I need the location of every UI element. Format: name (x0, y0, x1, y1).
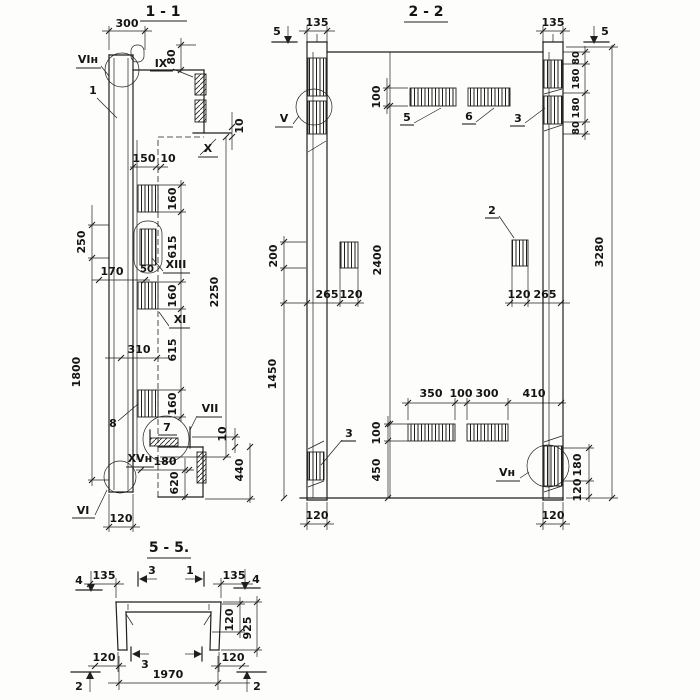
svg-text:160: 160 (166, 187, 179, 210)
callout-2: 2 (488, 204, 496, 217)
svg-text:120: 120 (340, 288, 363, 301)
svg-text:120: 120 (222, 651, 245, 664)
dim-chain-right-top: 80 180 180 80 (563, 46, 590, 140)
svg-text:300: 300 (116, 17, 139, 30)
svg-text:1970: 1970 (153, 668, 184, 681)
section-mark-3-top: 3 (138, 564, 157, 586)
rebar-mesh-bottom-2 (467, 424, 508, 441)
svg-text:450: 450 (370, 458, 383, 481)
section-mark-1-top: 1 (185, 564, 204, 586)
svg-text:10: 10 (216, 426, 229, 442)
svg-text:3280: 3280 (593, 236, 606, 267)
dim-135-right-55: 135 (213, 569, 253, 598)
callout-7: 7 (163, 421, 171, 434)
dim-440: 440 (205, 443, 255, 503)
svg-text:265: 265 (534, 288, 557, 301)
detail-label-v: V (280, 112, 289, 125)
dim-265-120-left: 265 120 (280, 268, 364, 307)
svg-text:615: 615 (166, 236, 179, 259)
right-stile (543, 34, 563, 500)
svg-text:160: 160 (166, 392, 179, 415)
dim-300: 300 (102, 17, 152, 50)
svg-text:5: 5 (601, 25, 609, 38)
dim-310: 310 (105, 343, 168, 361)
svg-text:925: 925 (241, 617, 254, 640)
svg-text:100: 100 (370, 85, 383, 108)
svg-text:310: 310 (128, 343, 151, 356)
callout-6: 6 (465, 110, 473, 123)
dim-120-bottom-left-55: 120 (88, 651, 126, 672)
section-2-2-view: 2 - 2 5 135 (266, 4, 618, 530)
dim-120-bottom-right-55: 120 (211, 651, 249, 672)
detail-label-vin: VIн (78, 53, 98, 66)
left-stile (307, 34, 327, 500)
svg-text:100: 100 (450, 387, 473, 400)
callout-3-bottom: 3 (345, 427, 353, 440)
top-flange-detail (133, 70, 231, 137)
section-mark-2-left: 2 (71, 671, 100, 693)
section-2-2-title: 2 - 2 (408, 4, 443, 20)
dim-120-bottom-right: 120 (536, 502, 570, 530)
svg-text:1800: 1800 (70, 356, 83, 387)
svg-text:120: 120 (223, 608, 236, 631)
dim-170-50: 170 50 (92, 264, 154, 283)
detail-label-vi: VI (77, 504, 90, 517)
detail-label-xvn: XVн (128, 452, 153, 465)
svg-text:4: 4 (252, 573, 260, 586)
section-1-1-title: 1 - 1 (145, 4, 180, 20)
svg-text:440: 440 (233, 458, 246, 481)
section-mark-5-right: 5 (584, 25, 609, 44)
svg-text:135: 135 (306, 16, 329, 29)
svg-text:180: 180 (571, 98, 582, 119)
drawing-sheet: 1 - 1 VIн 1 300 (0, 0, 700, 700)
svg-text:2: 2 (253, 680, 261, 693)
structural-drawing: 1 - 1 VIн 1 300 (0, 0, 700, 700)
svg-text:80: 80 (571, 51, 582, 65)
rebar-mesh-5 (410, 88, 456, 106)
section-5-5-title: 5 - 5. (149, 540, 189, 556)
embed-plate-right (512, 240, 528, 266)
dim-10-flange: 10 (192, 426, 240, 453)
svg-text:120: 120 (571, 478, 584, 501)
section-mark-bottom-right (185, 647, 202, 661)
embed-plate-3 (138, 390, 158, 417)
svg-text:180: 180 (571, 69, 582, 90)
callout-3-top: 3 (514, 112, 522, 125)
dim-chain-bottom: 350 100 300 410 (402, 387, 566, 420)
detail-label-xiii: XIII (166, 258, 187, 271)
detail-label-vii: VII (202, 402, 219, 415)
svg-text:620: 620 (168, 471, 181, 494)
svg-text:50: 50 (140, 264, 154, 275)
detail-label-ix: IX (155, 57, 168, 70)
svg-text:135: 135 (93, 569, 116, 582)
svg-text:1450: 1450 (266, 358, 279, 389)
rebar-mesh-bottom-1 (408, 424, 455, 441)
callout-8: 8 (109, 417, 117, 430)
svg-text:180: 180 (154, 455, 177, 468)
svg-text:180: 180 (571, 453, 584, 476)
svg-text:120: 120 (93, 651, 116, 664)
dim-chain-inner: 160 615 160 615 160 (158, 180, 186, 422)
svg-text:135: 135 (542, 16, 565, 29)
section-mark-2-right: 2 (237, 671, 266, 693)
svg-text:200: 200 (267, 244, 280, 267)
svg-text:135: 135 (223, 569, 246, 582)
embed-plate-2 (138, 282, 158, 309)
svg-text:170: 170 (101, 265, 124, 278)
svg-text:300: 300 (476, 387, 499, 400)
callout-5: 5 (403, 111, 411, 124)
rebar-mesh-6 (468, 88, 510, 106)
svg-text:410: 410 (523, 387, 546, 400)
section-1-1-view: 1 - 1 VIн 1 300 (70, 4, 255, 532)
svg-text:2: 2 (75, 680, 83, 693)
dim-200-1450: 200 1450 (266, 236, 306, 501)
svg-text:3: 3 (141, 658, 149, 671)
svg-text:100: 100 (370, 421, 383, 444)
svg-text:120: 120 (508, 288, 531, 301)
svg-text:120: 120 (110, 512, 133, 525)
svg-text:120: 120 (542, 509, 565, 522)
embed-plate-1 (138, 185, 158, 212)
svg-text:120: 120 (306, 509, 329, 522)
channel-profile (116, 602, 221, 650)
svg-text:160: 160 (166, 284, 179, 307)
svg-text:4: 4 (75, 574, 83, 587)
svg-text:10: 10 (233, 118, 246, 134)
svg-text:2400: 2400 (371, 244, 384, 275)
section-5-5-view: 5 - 5. 4 4 (71, 540, 266, 693)
dim-120-bottom: 120 (103, 494, 140, 532)
svg-text:80: 80 (571, 121, 582, 135)
svg-text:5: 5 (273, 25, 281, 38)
svg-text:350: 350 (420, 387, 443, 400)
dim-chain-left: 250 1800 (70, 205, 109, 486)
svg-text:265: 265 (316, 288, 339, 301)
svg-text:150: 150 (133, 152, 156, 165)
svg-text:1: 1 (186, 564, 194, 577)
dim-100-450-bottom: 100 450 (370, 416, 408, 501)
callout-1: 1 (89, 84, 97, 97)
svg-text:3: 3 (148, 564, 156, 577)
dim-135-left-55: 135 (84, 569, 124, 598)
svg-text:2250: 2250 (208, 276, 221, 307)
dim-100-top: 100 (370, 78, 408, 114)
section-mark-5-left: 5 (272, 25, 297, 44)
dim-10-step: 10 (229, 112, 246, 150)
dim-80: 80 (165, 38, 196, 73)
embed-plate-left (340, 242, 358, 268)
svg-text:250: 250 (75, 230, 88, 253)
dim-120-bottom-left: 120 (300, 502, 334, 530)
section-mark-3-bottom: 3 (131, 647, 149, 671)
detail-label-xi: XI (174, 313, 187, 326)
detail-label-vn: Vн (499, 466, 515, 479)
svg-text:10: 10 (160, 152, 176, 165)
dim-120-265-right: 120 265 (505, 266, 570, 307)
